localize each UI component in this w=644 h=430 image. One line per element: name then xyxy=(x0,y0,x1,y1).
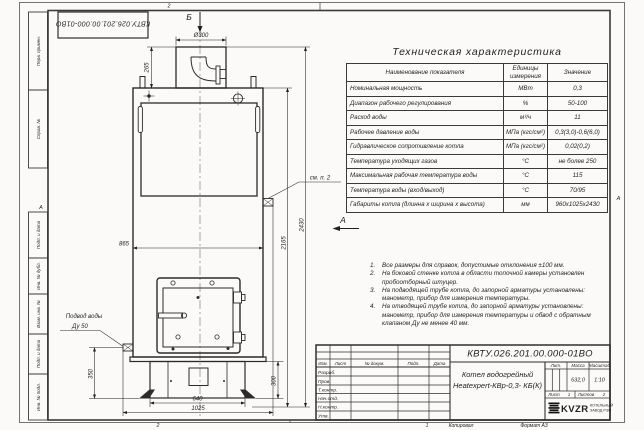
row-name: Диапазон рабочего регулирования xyxy=(347,96,504,111)
row-prov: Пров. xyxy=(318,379,331,385)
company-logo: KVZR КОТЕЛЬНЫЙ ЗАВОД РЭП xyxy=(549,403,614,416)
door-handle xyxy=(159,313,183,318)
product-name-line1: Котел водогрейный xyxy=(462,370,534,379)
zone-bottom-right: 1 xyxy=(426,423,429,429)
table-row: Гидравлическое сопротивление котлаМПа (к… xyxy=(347,140,608,155)
sheets-label: Листов xyxy=(577,392,595,397)
view-b-label: Б xyxy=(186,12,192,22)
col-sign: Подп. xyxy=(408,361,420,366)
format-label: Формат А3 xyxy=(520,423,548,429)
margin-label-vzam-inv: Взам. инв. № xyxy=(36,300,41,328)
row-tkontr: Т.контр. xyxy=(318,387,337,393)
row-name: Температура воды (вход/выход) xyxy=(347,183,504,198)
row-unit: МВт xyxy=(504,82,548,97)
sheets-value: 2 xyxy=(602,392,606,397)
logo-text: KVZR xyxy=(561,404,588,415)
notes-block: 1. Все размеры для справок, допустимые о… xyxy=(368,262,611,328)
row-unit: °С xyxy=(504,183,548,198)
row-value: 960х1025х2430 xyxy=(548,198,608,213)
dim-overall-width: 1025 xyxy=(191,406,205,412)
spec-col-name: Наименование показателя xyxy=(347,64,504,82)
upper-panel xyxy=(141,103,257,196)
dim-total-height: 2430 xyxy=(300,218,306,233)
margin-label-inv-dubl: Инв. № дубл. xyxy=(36,262,41,290)
drawing-sheet: Перв. примен. Справ. № Подп. и дата Инв.… xyxy=(0,0,644,430)
spec-table: Наименование показателя Единицы измерени… xyxy=(346,63,608,213)
doc-number-top-text: КВТУ.026.201.00.000-01ВО xyxy=(56,20,151,27)
inlet-label-line1: Подвод воды xyxy=(66,314,103,320)
row-nachotd: Нач.отд. xyxy=(318,396,338,402)
row-name: Габариты котла (длинна х ширина х высота… xyxy=(347,198,504,213)
view-a-label: А xyxy=(339,215,346,225)
row-value: 0,3(3,0)-0,6(6,0) xyxy=(548,125,608,140)
table-row: Температура воды (вход/выход)°С70/95 xyxy=(347,183,608,198)
sheet-value: 1 xyxy=(568,392,571,397)
margin-label-perv-primen: Перв. примен. xyxy=(36,36,41,66)
note-number: 4. xyxy=(368,303,382,328)
scale-value: 1:10 xyxy=(594,378,606,384)
callout-note2-text: см. п. 2 xyxy=(310,176,331,182)
panel-hinge-right xyxy=(256,107,260,133)
title-block-doc-number: КВТУ.026.201.00.000-01ВО xyxy=(467,349,593,360)
dim-body-height: 2165 xyxy=(282,236,288,251)
pedestal xyxy=(139,362,256,399)
row-unit: °С xyxy=(504,154,548,169)
list-item: 4. На отводящей трубе котла, до запорной… xyxy=(368,303,611,328)
spec-table-header: Наименование показателя Единицы измерени… xyxy=(347,64,608,82)
company-line2: ЗАВОД РЭП xyxy=(590,409,611,413)
view-markers: Б А см. п. 2 Подвод воды Ду 50 xyxy=(66,12,359,330)
row-unit: м³/ч xyxy=(504,111,548,126)
margin-label-podp-data-1: Подп. и дата xyxy=(36,220,41,249)
spec-col-value: Значение xyxy=(548,64,608,82)
fire-door xyxy=(157,278,245,353)
top-marker-cross xyxy=(144,91,155,102)
inlet-label-line2: Ду 50 xyxy=(71,324,88,330)
margin-box-labels: Перв. примен. Справ. № Подп. и дата Инв.… xyxy=(36,36,41,411)
product-name-line2: Heatexpert-КВр-0,3- КБ(К) xyxy=(453,381,543,390)
row-unit: °С xyxy=(504,169,548,184)
mass-label: Масса xyxy=(571,363,585,368)
row-razrab: Разраб. xyxy=(318,370,335,376)
company-line1: КОТЕЛЬНЫЙ xyxy=(590,404,613,408)
panel-hinge-left xyxy=(138,107,142,133)
row-name: Расход воды xyxy=(347,111,504,126)
zone-top: 2 xyxy=(167,4,171,10)
row-value: 50-100 xyxy=(548,96,608,111)
foot-left xyxy=(139,390,155,399)
margin-label-inv-podl: Инв. № подл. xyxy=(36,383,41,411)
zone-right: А xyxy=(616,196,621,202)
spec-table-title: Техническая характеристика xyxy=(392,46,561,58)
col-list: Лист xyxy=(334,361,347,366)
flue-elbow xyxy=(191,57,226,84)
list-item: 2. На боковой стенке котла в области топ… xyxy=(368,270,611,287)
row-nkontr: Н.контр. xyxy=(318,404,338,410)
inlet-leader xyxy=(60,331,123,347)
copied-label: Копировал xyxy=(449,423,474,429)
chimney-stub xyxy=(176,47,226,88)
mass-value: 632,0 xyxy=(571,378,586,384)
zone-left: А xyxy=(38,205,43,211)
table-row: Температура уходящих газов°Сне более 250 xyxy=(347,154,608,169)
row-value: 0,02(0,2) xyxy=(548,140,608,155)
lifting-lug-left xyxy=(140,77,145,89)
sampling-stub xyxy=(263,199,273,207)
dim-inlet-height: 350 xyxy=(89,368,95,379)
row-value: не более 250 xyxy=(548,154,608,169)
view-b-arrow xyxy=(198,26,203,33)
note-text: На боковой стенке котла в области топочн… xyxy=(382,270,611,287)
dim-base-height: 300 xyxy=(272,375,278,386)
dimension-lines xyxy=(89,37,310,417)
dim-stub-height: 265 xyxy=(145,62,151,74)
row-name: Максимальная рабочая температура воды xyxy=(347,169,504,184)
table-row: Номинальная мощностьМВт0,3 xyxy=(347,82,608,97)
dim-base-width: 640 xyxy=(192,397,203,403)
door-hinge-bottom xyxy=(234,332,242,343)
note-text: На подводящей трубе котла, до запорной а… xyxy=(382,287,611,304)
row-unit: % xyxy=(504,96,548,111)
view-a-arrow xyxy=(333,226,341,231)
foot-right xyxy=(240,390,256,399)
col-date: Дата xyxy=(433,361,446,366)
table-row: Максимальная рабочая температура воды°С1… xyxy=(347,169,608,184)
row-value: 11 xyxy=(548,111,608,126)
table-row: Расход водым³/ч11 xyxy=(347,111,608,126)
lifting-lug-right xyxy=(251,77,256,89)
row-value: 0,3 xyxy=(548,82,608,97)
margin-label-podp-data-2: Подп. и дата xyxy=(36,339,41,368)
row-unit: мм xyxy=(504,198,548,213)
margin-label-sprav-no: Справ. № xyxy=(36,119,41,140)
row-utv: Утв. xyxy=(318,413,329,419)
note-number: 2. xyxy=(368,270,382,287)
water-inlet-stub xyxy=(123,344,133,351)
table-row: Рабочее давление водыМПа (кгс/см²)0,3(3,… xyxy=(347,125,608,140)
table-row: Диапазон рабочего регулирования%50-100 xyxy=(347,96,608,111)
door-hinge-top xyxy=(234,292,242,303)
row-name: Номинальная мощность xyxy=(347,82,504,97)
boiler-body xyxy=(133,88,263,357)
grate-icon xyxy=(549,403,560,414)
note-number: 3. xyxy=(368,287,382,304)
table-row: Габариты котла (длинна х ширина х высота… xyxy=(347,198,608,213)
row-name: Температура уходящих газов xyxy=(347,154,504,169)
row-name: Гидравлическое сопротивление котла xyxy=(347,140,504,155)
note-number: 1. xyxy=(368,262,382,270)
dim-body-width: 865 xyxy=(119,242,130,248)
zone-bottom-left: 2 xyxy=(156,423,160,429)
list-item: 3. На подводящей трубе котла, до запорно… xyxy=(368,287,611,304)
row-unit: МПа (кгс/см²) xyxy=(504,140,548,155)
row-value: 70/95 xyxy=(548,183,608,198)
col-doc: № докум. xyxy=(365,361,385,366)
dim-diameter: Ø300 xyxy=(193,33,209,39)
ash-window xyxy=(189,368,208,386)
col-izm: Изм. xyxy=(318,361,328,366)
row-unit: МПа (кгс/см²) xyxy=(504,125,548,140)
scale-label: Масштаб xyxy=(589,363,610,368)
doc-number-top-box: КВТУ.026.201.00.000-01ВО xyxy=(56,12,151,38)
sheet-label: Лист xyxy=(547,392,560,397)
callout-leader xyxy=(268,182,341,199)
lit-label: Лит. xyxy=(550,363,562,368)
spec-col-units: Единицы измерения xyxy=(504,64,548,82)
row-value: 115 xyxy=(548,169,608,184)
note-text: На отводящей трубе котла, до запорной ар… xyxy=(382,303,611,328)
row-name: Рабочее давление воды xyxy=(347,125,504,140)
